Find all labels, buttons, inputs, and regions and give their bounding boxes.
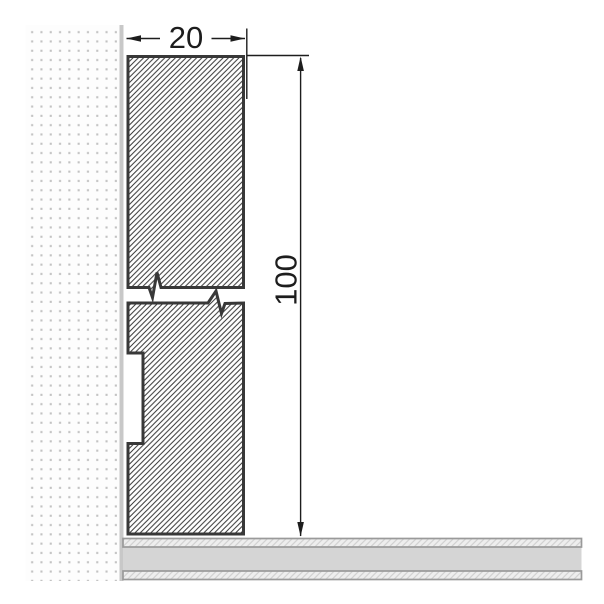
profile-cross-section-drawing: 20 100 (0, 0, 604, 604)
height-dimension: 100 (247, 56, 310, 537)
height-dim-arrow-bottom (297, 522, 304, 537)
floor-middle-layer (123, 548, 582, 571)
height-dim-arrow-top (297, 57, 304, 72)
technical-drawing-canvas: 20 100 (0, 0, 604, 604)
floor-top-layer (123, 539, 582, 548)
profile-lower-section (128, 291, 244, 534)
height-dimension-label: 100 (269, 254, 304, 306)
floor-layers (123, 539, 582, 580)
wall-stipple-area (26, 25, 121, 581)
width-dimension-label: 20 (169, 20, 203, 55)
floor-bottom-layer (123, 571, 582, 580)
width-dim-arrow-left (127, 35, 142, 42)
profile-upper-section (128, 57, 244, 298)
width-dim-arrow-right (231, 35, 246, 42)
wall-surface-line (120, 25, 124, 581)
